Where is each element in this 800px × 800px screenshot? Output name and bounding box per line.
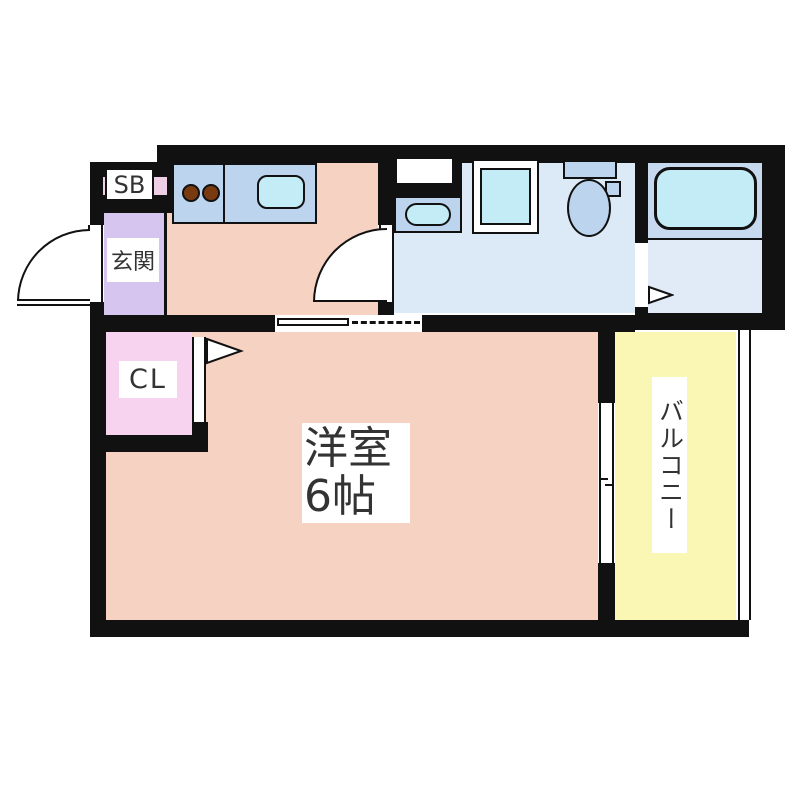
wall-closet-corner	[192, 422, 208, 452]
stove-burner-icon	[182, 184, 200, 202]
western-room-text-line2: 6帖	[304, 473, 376, 521]
stove-burner-icon	[202, 184, 220, 202]
entrance-door-arc	[17, 229, 90, 302]
closet-door-strip	[192, 337, 206, 422]
bathtub-icon	[654, 167, 757, 230]
wall-washroom-bathroom-upper	[635, 145, 648, 243]
wall-left-lower	[90, 315, 106, 637]
floorplan-canvas: SB 玄関 CL 洋室 6帖 バルコニー	[0, 0, 800, 800]
washing-machine-tub	[480, 168, 531, 225]
washing-machine-icon	[472, 159, 539, 234]
washroom-door-baseline	[313, 300, 387, 302]
wall-mid-left	[90, 315, 275, 332]
window-tick	[601, 478, 608, 480]
western-room-label: 洋室 6帖	[302, 423, 410, 523]
toilet-bowl	[567, 179, 611, 237]
window-symbol	[599, 403, 614, 563]
closet-text: CL	[129, 364, 167, 395]
kitchen-sink-icon	[257, 175, 305, 209]
balcony-railing	[738, 330, 751, 620]
door-direction-arrow	[648, 285, 674, 305]
wall-room-balcony-lower	[598, 563, 615, 620]
wall-bathroom-bottom	[635, 313, 785, 330]
kitchen-counter	[172, 163, 317, 224]
wall-left-upper	[90, 213, 104, 225]
bathroom-door-gap	[635, 243, 648, 307]
door-direction-arrow	[206, 337, 244, 365]
shoe-box-text: SB	[114, 171, 146, 199]
wall-bottom	[90, 620, 749, 637]
wall-top	[157, 145, 785, 163]
basin-bowl	[405, 203, 451, 226]
sliding-door-panel	[277, 318, 349, 326]
entrance-label: 玄関	[107, 238, 159, 282]
window-tick	[605, 484, 612, 486]
wall-closet-bottom	[90, 435, 208, 452]
western-room-text-line1: 洋室	[304, 425, 392, 473]
wall-entrance-kitchen-divider	[164, 213, 167, 315]
entrance-door-baseline	[17, 299, 90, 306]
sliding-door-symbol	[275, 315, 422, 332]
toilet-tank	[563, 160, 617, 179]
balcony-label: バルコニー	[652, 377, 687, 553]
entrance-text: 玄関	[111, 244, 155, 276]
sliding-door-track-dashed	[352, 321, 420, 324]
wash-basin-icon	[394, 196, 462, 233]
wall-kitchen-washroom-lower	[378, 302, 394, 315]
wall-left-below-door	[90, 302, 104, 315]
wall-room-balcony-upper	[598, 315, 615, 403]
shoe-box-label: SB	[105, 168, 154, 201]
entrance-door-leaf	[88, 225, 103, 302]
closet-label: CL	[119, 361, 177, 398]
toilet-icon	[563, 160, 622, 240]
wall-right	[762, 145, 785, 330]
counter-divider	[223, 165, 225, 222]
balcony-text: バルコニー	[652, 398, 688, 533]
pipe-space-niche	[397, 159, 452, 183]
